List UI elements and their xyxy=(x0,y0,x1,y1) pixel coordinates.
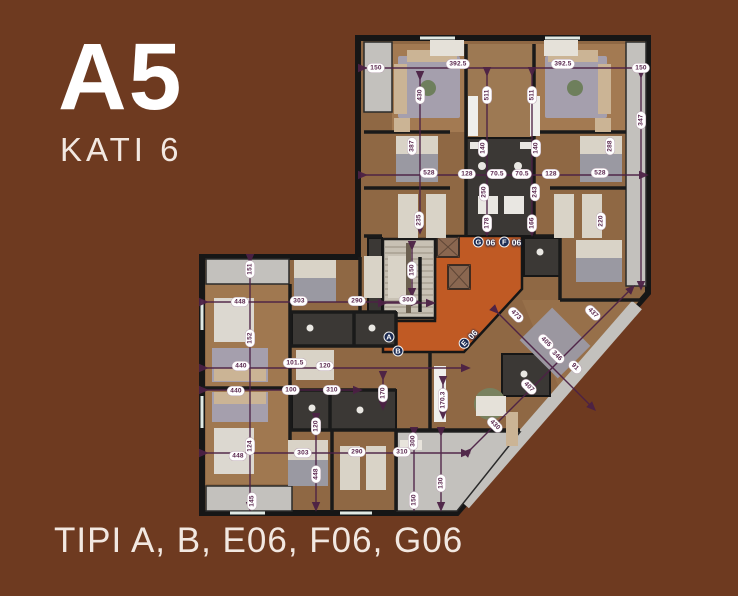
unit-badge-letter: A xyxy=(384,332,395,343)
dimension-label: 528 xyxy=(591,169,608,178)
dimension-label: 440 xyxy=(227,387,244,396)
dimension-label: 70.5 xyxy=(487,170,506,179)
unit-badge-letter: F xyxy=(499,237,510,248)
dimension-label: 140 xyxy=(479,139,488,156)
dimension-label: 151 xyxy=(246,260,255,277)
dimension-label: 150 xyxy=(632,64,649,73)
dimension-label: 511 xyxy=(528,86,537,103)
dimension-label: 152 xyxy=(246,329,255,346)
dimension-label: 170 xyxy=(379,384,388,401)
unit-badge-a: A xyxy=(384,332,395,343)
dimension-label: 387 xyxy=(408,137,417,154)
dimension-label: 440 xyxy=(232,362,249,371)
dimension-label: 166 xyxy=(528,214,537,231)
dimension-label: 128 xyxy=(542,170,559,179)
page-background: { "header": { "block_label": "A5", "floo… xyxy=(0,0,738,596)
unit-badge-number: 06 xyxy=(512,237,521,247)
dimension-label: 303 xyxy=(294,449,311,458)
dimension-label: 178 xyxy=(483,214,492,231)
dimension-label: 70.5 xyxy=(512,170,531,179)
plan-annotations: 150392.5392.5150430511511347387288528128… xyxy=(190,28,660,520)
dimension-label: 120 xyxy=(316,362,333,371)
dimension-label: 392.5 xyxy=(551,60,574,69)
dimension-label: 430 xyxy=(416,86,425,103)
dimension-label: 235 xyxy=(415,211,424,228)
dimension-label: 347 xyxy=(637,111,646,128)
dimension-label: 473 xyxy=(507,306,526,325)
dimension-label: 220 xyxy=(597,212,606,229)
unit-badge-letter: B xyxy=(393,346,404,357)
dimension-label: 310 xyxy=(323,386,340,395)
dimension-label: 300 xyxy=(409,432,418,449)
dimension-label: 130 xyxy=(437,474,446,491)
dimension-label: 145 xyxy=(248,492,257,509)
dimension-label: 407 xyxy=(520,378,539,397)
dimension-label: 170.3 xyxy=(439,388,448,411)
dimension-label: 300 xyxy=(399,296,416,305)
unit-badge-number: 06 xyxy=(486,237,495,247)
unit-badge-f06: F06 xyxy=(499,237,521,248)
dimension-label: 430 xyxy=(486,416,505,435)
unit-badge-e06: E06 xyxy=(456,327,479,351)
floor-plan: 150392.5392.5150430511511347387288528128… xyxy=(190,28,660,520)
dimension-label: 392.5 xyxy=(446,60,469,69)
unit-types-caption: TIPI A, B, E06, F06, G06 xyxy=(54,521,463,561)
dimension-label: 448 xyxy=(229,452,246,461)
dimension-label: 290 xyxy=(348,448,365,457)
dimension-label: 303 xyxy=(290,297,307,306)
dimension-label: 346 xyxy=(548,347,567,366)
unit-badge-b: B xyxy=(393,346,404,357)
dimension-label: 101.5 xyxy=(283,359,306,368)
floor-subtitle: KATI 6 xyxy=(60,131,182,169)
dimension-label: 140 xyxy=(532,139,541,156)
dimension-label: 310 xyxy=(393,448,410,457)
dimension-label: 124 xyxy=(246,437,255,454)
dimension-label: 128 xyxy=(458,170,475,179)
dimension-label: 91 xyxy=(567,359,583,375)
dimension-label: 120 xyxy=(312,417,321,434)
dimension-label: 511 xyxy=(483,86,492,103)
block-title: A5 xyxy=(58,30,183,125)
dimension-label: 150 xyxy=(367,64,384,73)
unit-badge-letter: G xyxy=(473,237,484,248)
dimension-label: 448 xyxy=(231,298,248,307)
dimension-label: 100 xyxy=(282,386,299,395)
dimension-label: 528 xyxy=(420,169,437,178)
dimension-label: 288 xyxy=(606,137,615,154)
dimension-label: 150 xyxy=(410,491,419,508)
dimension-label: 437 xyxy=(584,304,603,323)
dimension-label: 250 xyxy=(480,183,489,200)
dimension-label: 150 xyxy=(408,261,417,278)
unit-badge-g06: G06 xyxy=(473,237,495,248)
dimension-label: 243 xyxy=(531,183,540,200)
dimension-label: 290 xyxy=(348,297,365,306)
dimension-label: 448 xyxy=(312,465,321,482)
